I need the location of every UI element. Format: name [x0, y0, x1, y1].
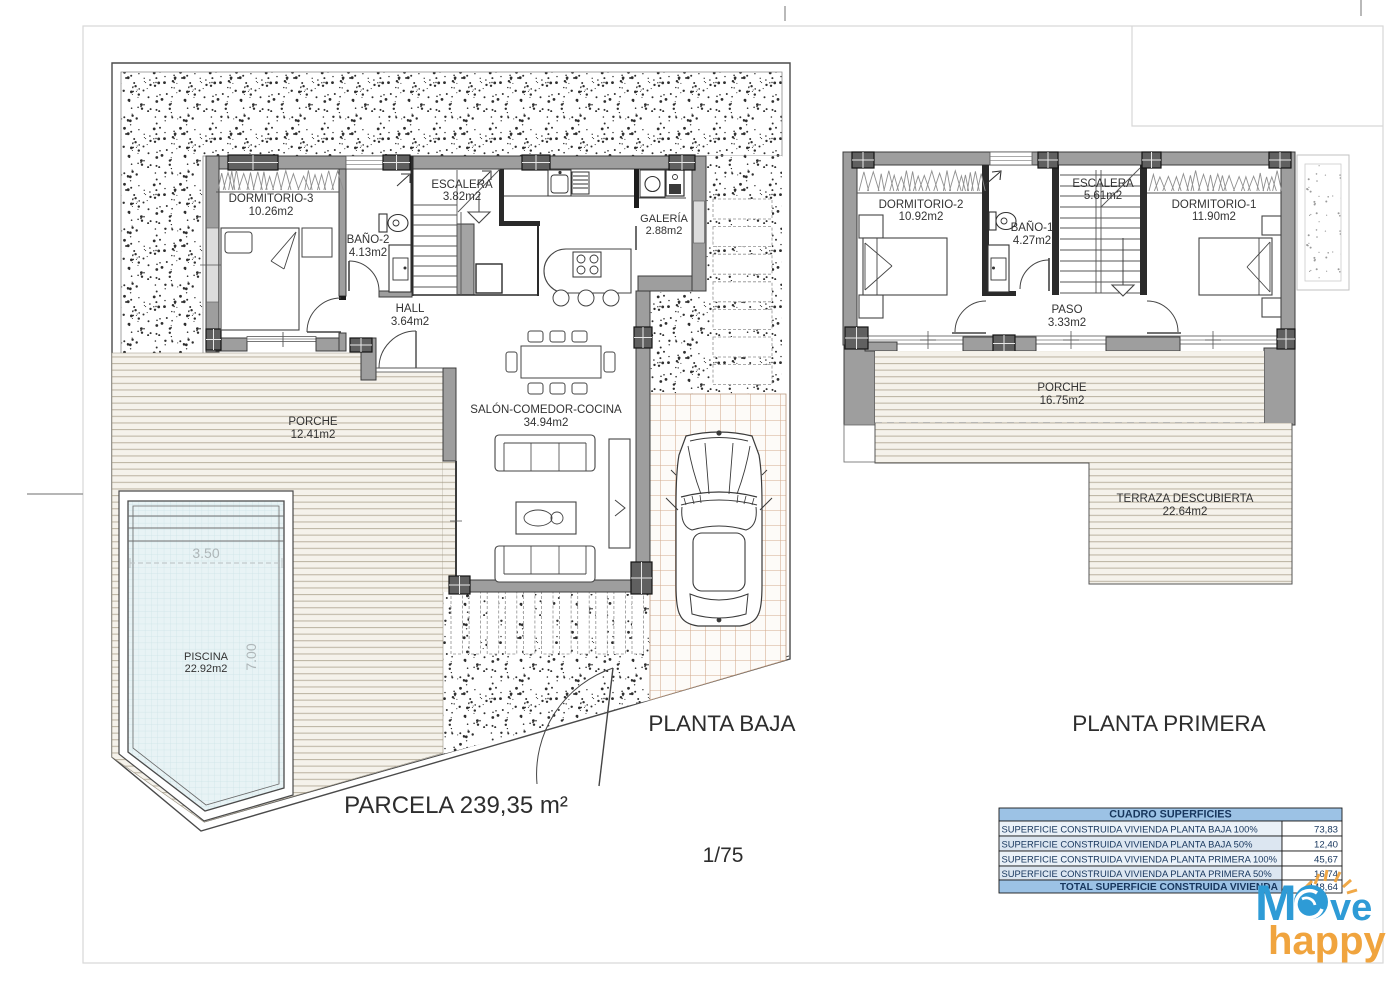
svg-text:TERRAZA DESCUBIERTA: TERRAZA DESCUBIERTA: [1117, 493, 1254, 505]
svg-text:happy: happy: [1268, 919, 1387, 963]
svg-text:PORCHE: PORCHE: [288, 416, 338, 428]
svg-text:PISCINA: PISCINA: [184, 651, 229, 663]
svg-text:SUPERFICIE CONSTRUIDA VIVIENDA: SUPERFICIE CONSTRUIDA VIVIENDA PLANTA PR…: [1002, 868, 1272, 879]
svg-text:PORCHE: PORCHE: [1037, 382, 1087, 394]
svg-text:4.27m2: 4.27m2: [1013, 235, 1051, 247]
svg-text:SUPERFICIE CONSTRUIDA VIVIENDA: SUPERFICIE CONSTRUIDA VIVIENDA PLANTA BA…: [1002, 824, 1258, 835]
svg-text:4.13m2: 4.13m2: [349, 247, 387, 259]
svg-text:SALÓN-COMEDOR-COCINA: SALÓN-COMEDOR-COCINA: [470, 403, 622, 416]
svg-text:GALERÍA: GALERÍA: [640, 212, 688, 225]
svg-text:45,67: 45,67: [1314, 855, 1338, 866]
svg-text:SUPERFICIE CONSTRUIDA VIVIENDA: SUPERFICIE CONSTRUIDA VIVIENDA PLANTA PR…: [1002, 854, 1277, 865]
svg-text:22.64m2: 22.64m2: [1163, 506, 1208, 518]
svg-text:10.92m2: 10.92m2: [899, 211, 944, 223]
svg-text:7.00: 7.00: [243, 643, 259, 670]
svg-text:73,83: 73,83: [1314, 825, 1338, 836]
svg-text:10.26m2: 10.26m2: [249, 206, 294, 218]
svg-text:CUADRO SUPERFICIES: CUADRO SUPERFICIES: [1109, 809, 1231, 821]
svg-text:3.50: 3.50: [192, 545, 219, 561]
svg-text:DORMITORIO-2: DORMITORIO-2: [879, 199, 964, 211]
svg-text:BAÑO-2: BAÑO-2: [347, 233, 390, 246]
svg-text:BAÑO-1: BAÑO-1: [1011, 221, 1054, 234]
svg-text:1/75: 1/75: [703, 844, 744, 867]
svg-text:DORMITORIO-3: DORMITORIO-3: [229, 193, 314, 205]
svg-text:HALL: HALL: [396, 303, 425, 315]
svg-text:3.82m2: 3.82m2: [443, 191, 481, 203]
svg-text:PASO: PASO: [1051, 304, 1082, 316]
svg-text:ESCALERA: ESCALERA: [431, 179, 493, 191]
svg-text:SUPERFICIE CONSTRUIDA VIVIENDA: SUPERFICIE CONSTRUIDA VIVIENDA PLANTA BA…: [1002, 839, 1253, 850]
svg-text:PLANTA BAJA: PLANTA BAJA: [648, 711, 795, 736]
svg-text:16.75m2: 16.75m2: [1040, 395, 1085, 407]
svg-text:3.33m2: 3.33m2: [1048, 317, 1086, 329]
svg-text:ESCALERA: ESCALERA: [1072, 178, 1134, 190]
svg-text:PLANTA PRIMERA: PLANTA PRIMERA: [1072, 711, 1265, 736]
svg-text:11.90m2: 11.90m2: [1192, 211, 1236, 223]
svg-text:2.88m2: 2.88m2: [646, 225, 683, 237]
svg-text:22.92m2: 22.92m2: [185, 663, 228, 675]
svg-text:12.41m2: 12.41m2: [291, 429, 336, 441]
svg-text:PARCELA 239,35 m²: PARCELA 239,35 m²: [344, 792, 568, 819]
svg-text:DORMITORIO-1: DORMITORIO-1: [1172, 199, 1257, 211]
svg-text:TOTAL SUPERFICIE CONSTRUIDA VI: TOTAL SUPERFICIE CONSTRUIDA VIVIENDA: [1060, 882, 1279, 893]
svg-text:12,40: 12,40: [1314, 840, 1338, 851]
svg-text:3.64m2: 3.64m2: [391, 316, 429, 328]
svg-text:5.61m2: 5.61m2: [1084, 190, 1122, 202]
svg-text:34.94m2: 34.94m2: [524, 417, 569, 429]
